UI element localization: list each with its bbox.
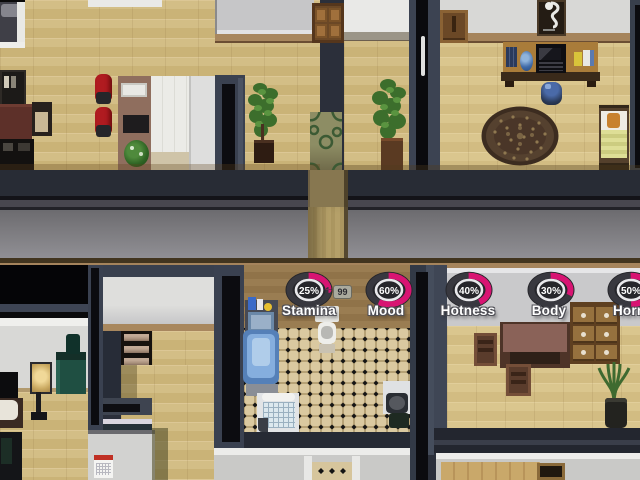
svg-text:40%: 40% [459,286,479,297]
svg-text:25%: 25% [299,286,319,297]
svg-text:30%: 30% [541,286,561,297]
svg-text:50%: 50% [621,286,640,297]
svg-text:60%: 60% [379,286,399,297]
